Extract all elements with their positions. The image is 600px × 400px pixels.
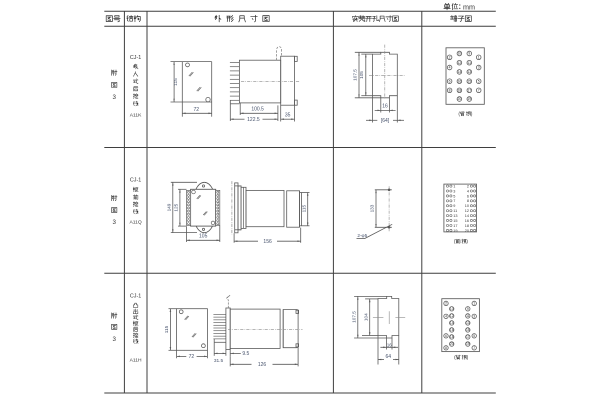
svg-text:2: 2 xyxy=(467,184,469,188)
svg-text:6: 6 xyxy=(445,334,447,338)
svg-text:13: 13 xyxy=(467,70,471,74)
svg-text:): ) xyxy=(466,239,468,245)
svg-text:19: 19 xyxy=(453,229,457,233)
svg-text:2: 2 xyxy=(449,56,451,60)
svg-text:A11Q: A11Q xyxy=(130,220,142,226)
svg-text:14: 14 xyxy=(450,321,454,325)
svg-text:2: 2 xyxy=(445,302,447,306)
svg-text:5: 5 xyxy=(473,334,475,338)
svg-text:9: 9 xyxy=(453,204,455,208)
svg-text:13: 13 xyxy=(453,214,457,218)
svg-text:10: 10 xyxy=(465,204,469,208)
svg-text:122.5: 122.5 xyxy=(247,117,260,123)
svg-text:149: 149 xyxy=(167,203,172,211)
svg-text:8: 8 xyxy=(467,199,469,203)
svg-text:5: 5 xyxy=(453,194,455,198)
svg-text:13: 13 xyxy=(466,321,470,325)
svg-text:7: 7 xyxy=(473,346,475,350)
svg-text:16: 16 xyxy=(382,103,388,109)
svg-text:18: 18 xyxy=(450,335,454,339)
svg-text:9: 9 xyxy=(467,307,469,311)
svg-text:126: 126 xyxy=(258,362,267,368)
svg-text:6: 6 xyxy=(449,79,451,83)
svg-text:3: 3 xyxy=(112,94,116,101)
svg-text:20: 20 xyxy=(450,342,454,346)
svg-text:7: 7 xyxy=(478,89,480,93)
svg-text:7: 7 xyxy=(453,199,455,203)
svg-text:A11K: A11K xyxy=(130,113,142,119)
svg-text:20: 20 xyxy=(458,97,462,101)
svg-text:): ) xyxy=(467,355,469,361)
svg-text:5: 5 xyxy=(478,79,480,83)
svg-text:12: 12 xyxy=(465,209,469,213)
svg-text:3: 3 xyxy=(112,336,116,343)
svg-text:125: 125 xyxy=(174,203,179,211)
svg-text:107.5: 107.5 xyxy=(351,311,356,323)
svg-text:18: 18 xyxy=(465,224,469,228)
svg-text:mm: mm xyxy=(463,2,475,11)
svg-text:6: 6 xyxy=(467,194,469,198)
svg-text:16: 16 xyxy=(458,79,462,83)
svg-text:11: 11 xyxy=(466,314,470,318)
svg-text:3: 3 xyxy=(478,66,480,70)
svg-text:14: 14 xyxy=(458,70,462,74)
svg-text:14: 14 xyxy=(465,214,469,218)
svg-text:19: 19 xyxy=(467,97,471,101)
svg-text:100.5: 100.5 xyxy=(251,107,264,113)
svg-text:105: 105 xyxy=(359,71,364,79)
svg-text:9.5: 9.5 xyxy=(242,351,249,357)
svg-text:2-φ5: 2-φ5 xyxy=(357,233,367,238)
svg-text:17: 17 xyxy=(467,89,471,93)
svg-text:17: 17 xyxy=(466,335,470,339)
svg-text:3: 3 xyxy=(112,219,116,226)
svg-text:115: 115 xyxy=(301,204,306,212)
svg-text:16: 16 xyxy=(465,219,469,223)
svg-text:CJ-1: CJ-1 xyxy=(130,294,141,300)
svg-text:12: 12 xyxy=(458,61,462,65)
svg-text:35: 35 xyxy=(285,113,291,119)
svg-text:3: 3 xyxy=(453,189,455,193)
svg-text:8: 8 xyxy=(449,89,451,93)
svg-text:3: 3 xyxy=(473,314,475,318)
svg-text:104: 104 xyxy=(363,313,368,321)
svg-text:10: 10 xyxy=(458,52,462,56)
svg-text:11: 11 xyxy=(453,209,457,213)
svg-text:156: 156 xyxy=(263,239,272,245)
svg-text:1: 1 xyxy=(473,302,475,306)
svg-text:): ) xyxy=(471,112,473,118)
svg-text:15: 15 xyxy=(453,219,457,223)
svg-text:10: 10 xyxy=(450,307,454,311)
svg-text:CJ-1: CJ-1 xyxy=(130,55,141,61)
svg-text:A11H: A11H xyxy=(130,358,142,364)
svg-text:105: 105 xyxy=(199,234,208,240)
svg-text:133: 133 xyxy=(370,204,375,212)
svg-text:19: 19 xyxy=(466,342,470,346)
svg-text:17: 17 xyxy=(453,224,457,228)
svg-text:4: 4 xyxy=(449,66,451,70)
svg-text:9: 9 xyxy=(468,52,470,56)
svg-text:15: 15 xyxy=(467,79,471,83)
svg-text:72: 72 xyxy=(189,354,195,360)
svg-text:16: 16 xyxy=(387,342,392,347)
svg-text:CJ-1: CJ-1 xyxy=(130,178,141,184)
svg-text:115: 115 xyxy=(173,78,179,86)
svg-text:4: 4 xyxy=(445,314,447,318)
svg-text:4: 4 xyxy=(467,189,469,193)
svg-text:1: 1 xyxy=(453,184,455,188)
svg-text:18: 18 xyxy=(458,89,462,93)
svg-text:64: 64 xyxy=(386,354,392,360)
svg-text:31.5: 31.5 xyxy=(214,358,224,364)
svg-text:72: 72 xyxy=(194,107,200,113)
svg-text:107.5: 107.5 xyxy=(352,69,357,81)
svg-text:11: 11 xyxy=(468,61,472,65)
svg-text:[64]: [64] xyxy=(381,118,390,124)
svg-text:1: 1 xyxy=(478,56,480,60)
svg-text:115: 115 xyxy=(164,325,169,333)
svg-text:16: 16 xyxy=(450,328,454,332)
svg-text:15: 15 xyxy=(466,328,470,332)
svg-text:20: 20 xyxy=(465,229,469,233)
svg-text:12: 12 xyxy=(450,314,454,318)
svg-text:8: 8 xyxy=(445,346,447,350)
